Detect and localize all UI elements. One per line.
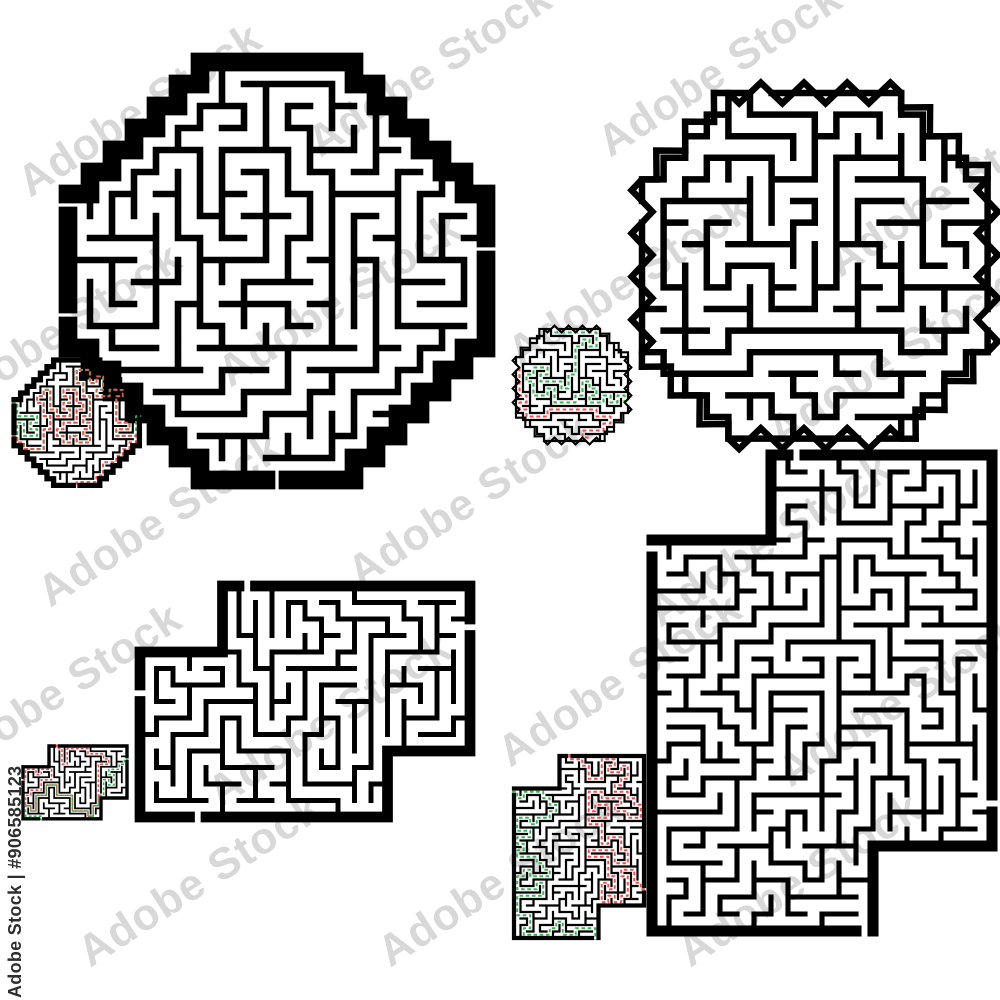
maze-svg-notched-rect-solution [23, 746, 127, 819]
maze-walls [514, 756, 644, 938]
maze-walls [140, 586, 470, 817]
maze-walls [642, 93, 988, 439]
watermark-id-bar: Adobe Stock | #906585123 [5, 766, 26, 998]
maze-svg-tall-notched-rect-solution [514, 756, 644, 938]
maze-svg-notched-rect-puzzle [140, 586, 470, 817]
maze-svg-zigzag-octagon-solution [516, 329, 628, 441]
watermark-id-text: Adobe Stock | #906585123 [5, 766, 25, 998]
maze-svg-tall-notched-rect-puzzle [652, 455, 992, 931]
stock-image-canvas: Adobe StockAdobe StockAdobe StockAdobe S… [0, 0, 1000, 1000]
maze-svg-zigzag-octagon-puzzle [642, 93, 988, 439]
maze-svg-diamond-solution [14, 360, 139, 485]
maze-walls [23, 746, 127, 819]
maze-walls [652, 455, 992, 931]
